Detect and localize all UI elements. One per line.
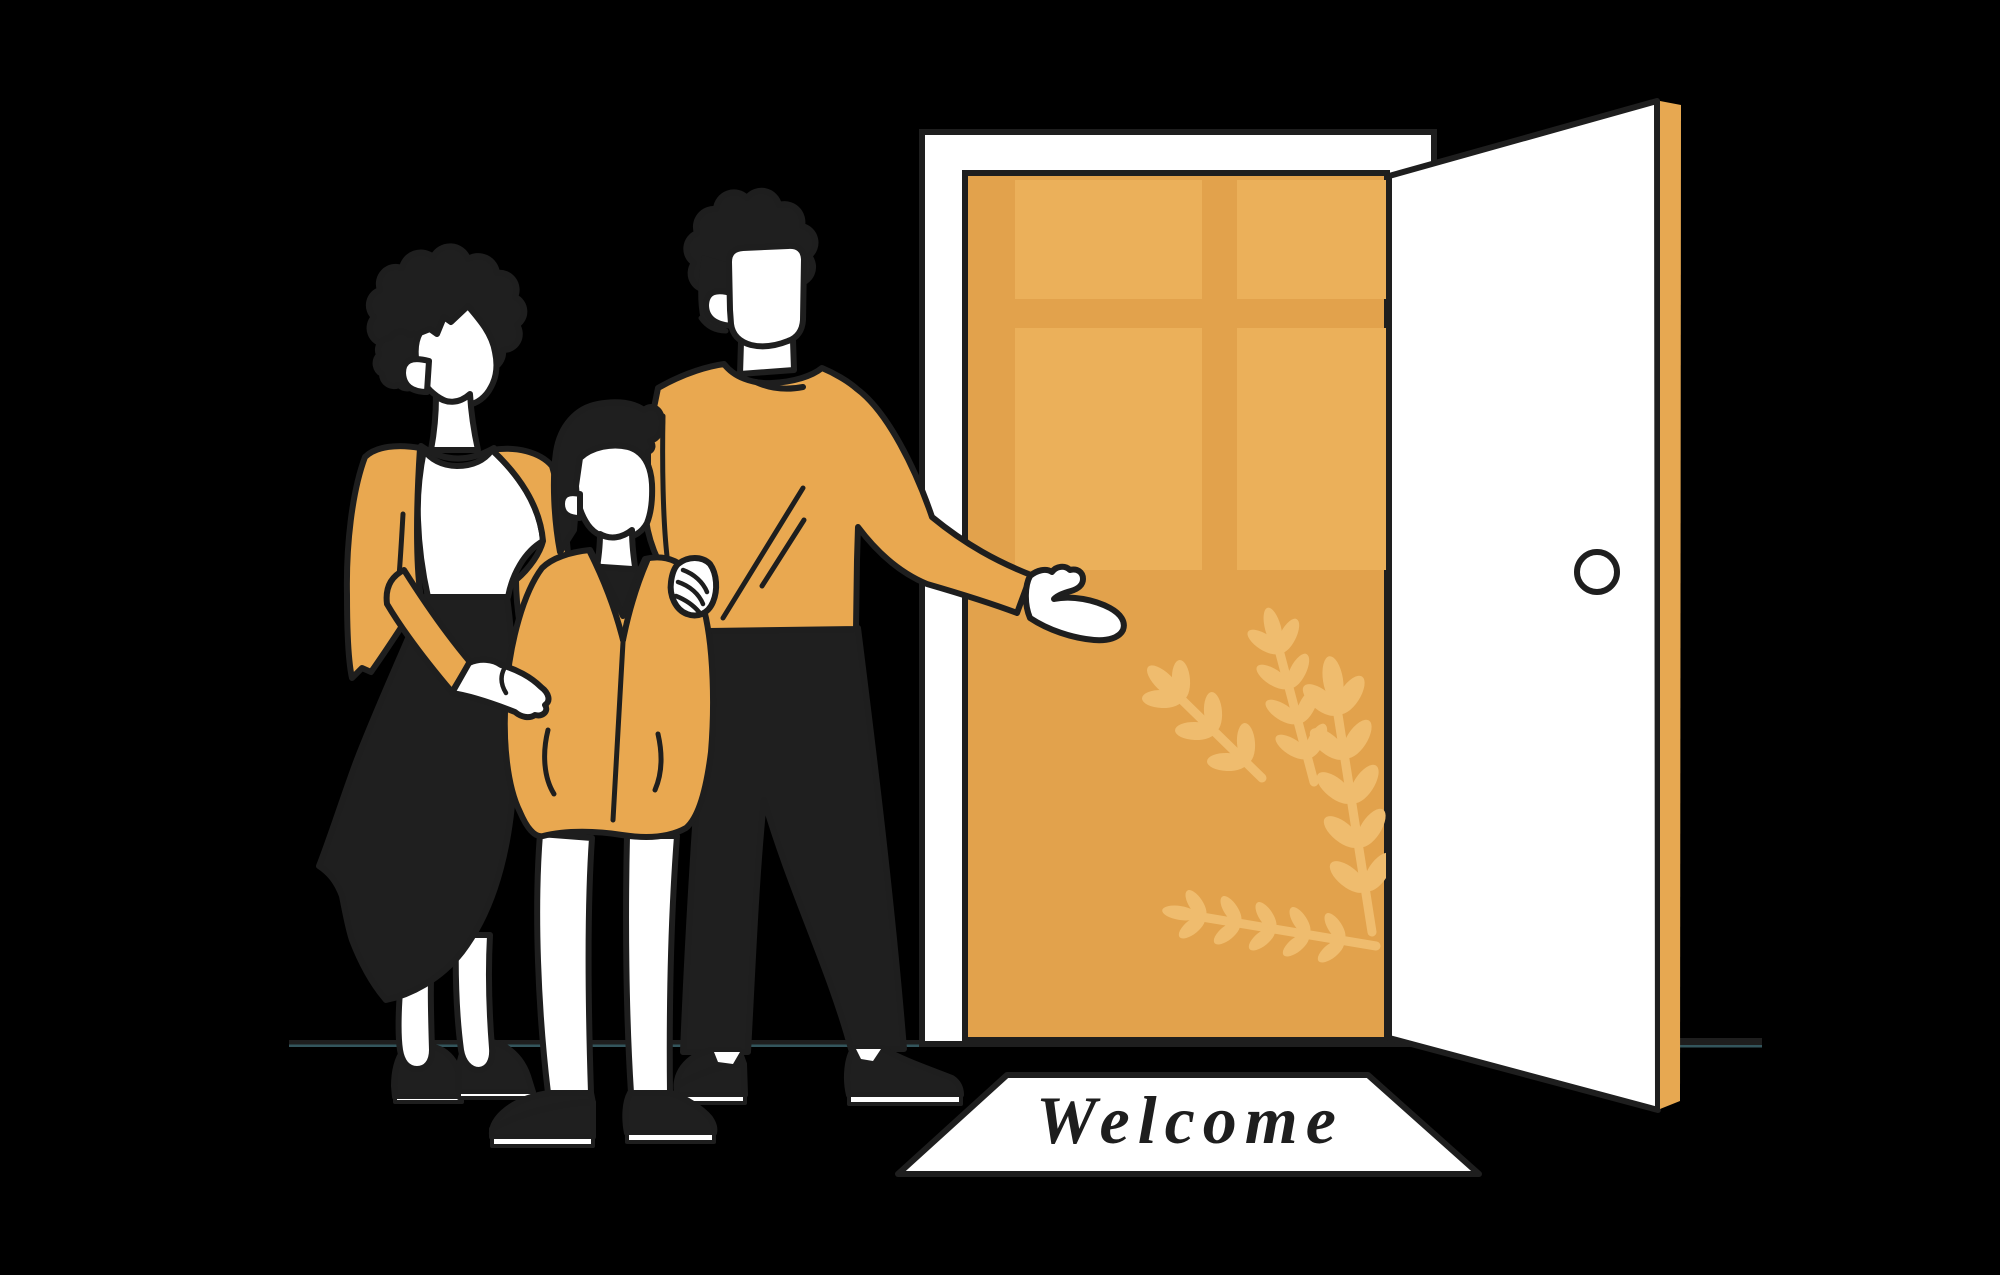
svg-text:Welcome: Welcome xyxy=(1036,1082,1344,1158)
